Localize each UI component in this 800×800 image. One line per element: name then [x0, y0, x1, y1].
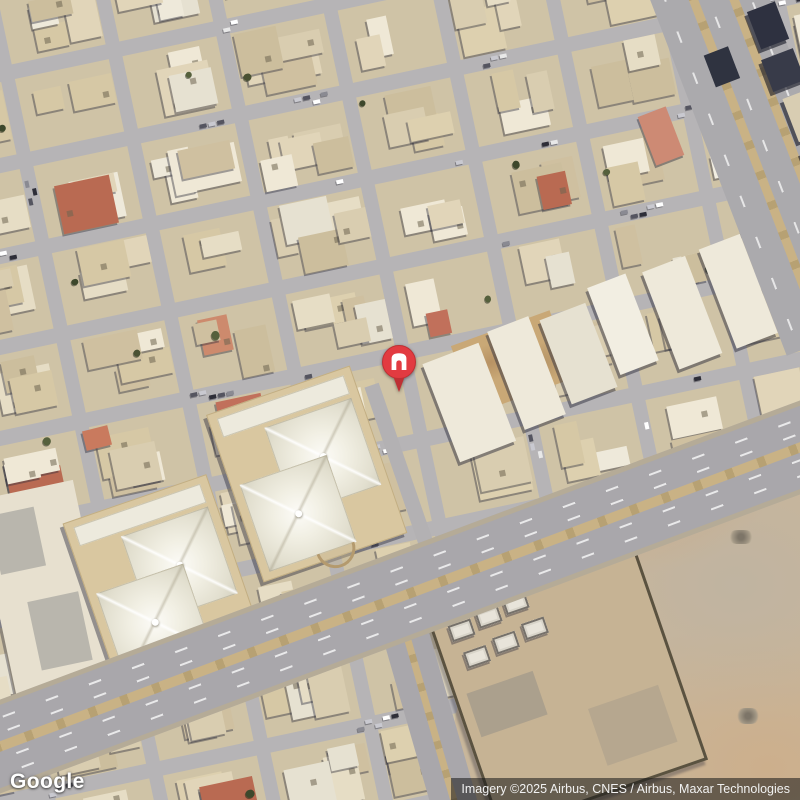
satellite-map-canvas[interactable]: Google Imagery ©2025 Airbus, CNES / Airb… [0, 0, 800, 800]
home-pin-icon [378, 344, 420, 394]
building-block [356, 78, 465, 170]
tree [210, 331, 220, 341]
building [782, 88, 800, 142]
roof-unit [223, 339, 230, 346]
building-block [375, 165, 484, 257]
parked-car [503, 241, 511, 246]
parked-car [647, 204, 655, 209]
paved-patch [588, 685, 678, 766]
house [69, 73, 116, 111]
roof-unit [389, 743, 396, 750]
house [313, 137, 354, 174]
parked-car [375, 723, 383, 728]
roof-unit [2, 217, 9, 224]
parked-car [357, 727, 365, 732]
roof-unit [417, 221, 424, 228]
building-block [553, 0, 662, 37]
parked-car [640, 212, 648, 217]
debris-pile [728, 530, 754, 544]
utility-unit [521, 616, 549, 640]
house [0, 194, 31, 238]
roof-unit [637, 51, 644, 58]
parked-car [0, 251, 7, 256]
building-block [159, 210, 268, 302]
house [426, 310, 452, 338]
parked-car [28, 198, 33, 206]
roof-unit [44, 37, 51, 44]
debris-pile [736, 708, 760, 724]
roof-unit [190, 78, 197, 85]
house [283, 760, 337, 800]
parked-car [230, 20, 238, 25]
roof-unit [100, 263, 107, 270]
roof-unit [311, 779, 318, 786]
roof-unit [307, 39, 314, 46]
utility-unit [492, 631, 520, 655]
roof-unit [271, 164, 278, 171]
building-block [270, 733, 379, 800]
building-block [33, 146, 142, 238]
parked-car [491, 55, 499, 60]
roof-unit [344, 228, 351, 235]
parked-car [621, 209, 629, 214]
building-block [0, 0, 106, 64]
building-block [0, 256, 54, 348]
map-marker[interactable] [378, 344, 420, 394]
parked-car [383, 715, 391, 720]
house [260, 154, 298, 192]
parked-car [223, 27, 231, 32]
parked-car [199, 123, 207, 128]
parked-car [9, 255, 17, 260]
building-block [0, 343, 72, 435]
building-block [338, 0, 447, 83]
parked-car [677, 113, 685, 118]
parked-car [208, 121, 216, 126]
house [54, 174, 119, 234]
house [33, 86, 66, 114]
building-block [482, 142, 591, 234]
roof-unit [103, 90, 110, 97]
building-block [52, 233, 161, 325]
house [334, 207, 372, 244]
paved-patch [466, 671, 547, 737]
roof-unit [19, 368, 26, 375]
house [0, 90, 12, 149]
parked-car [217, 120, 225, 125]
roof-unit [559, 187, 566, 194]
roof-unit [150, 338, 157, 345]
tree [512, 160, 521, 169]
parked-car [656, 202, 664, 207]
shadowed-building [761, 48, 800, 92]
roof-unit [113, 795, 120, 800]
parked-car [500, 53, 508, 58]
house [624, 35, 661, 71]
building-block [212, 0, 321, 19]
parked-car [365, 719, 373, 724]
parked-car [455, 160, 463, 165]
roof-unit [34, 385, 41, 392]
parked-car [303, 95, 311, 100]
house [233, 26, 285, 77]
house [546, 251, 576, 287]
map-attribution: Imagery ©2025 Airbus, CNES / Airbus, Max… [451, 778, 800, 800]
roof-unit [55, 0, 62, 7]
google-logo[interactable]: Google [10, 770, 85, 794]
mall-building-east [206, 366, 407, 583]
parked-car [542, 141, 550, 146]
roof-unit [520, 180, 527, 187]
parked-car [24, 181, 29, 189]
building-block [445, 0, 554, 60]
parked-car [391, 713, 399, 718]
building-block [267, 187, 376, 279]
building-block [163, 756, 272, 800]
tree [484, 295, 491, 302]
parked-car [320, 91, 328, 96]
building-block [15, 59, 124, 151]
house [491, 70, 521, 113]
roof-unit [348, 767, 355, 774]
roof-unit [67, 210, 74, 217]
tree [71, 278, 79, 286]
tree [358, 99, 366, 107]
building-block [122, 36, 231, 128]
building-block [0, 82, 17, 174]
shadowed-building [747, 1, 789, 49]
parked-car [483, 63, 491, 68]
parked-car [631, 213, 639, 218]
utility-unit [463, 645, 491, 669]
parked-car [294, 97, 302, 102]
roof-unit [264, 56, 271, 63]
parked-car [551, 140, 559, 145]
house [83, 789, 131, 800]
building-block [70, 320, 179, 412]
house [615, 224, 643, 268]
parked-car [336, 179, 344, 184]
building-block [104, 0, 213, 42]
roof-unit [149, 356, 156, 363]
roof-unit [701, 410, 708, 417]
building-block [141, 123, 250, 215]
parked-car [796, 0, 800, 2]
building-block [0, 169, 35, 261]
parked-car [313, 99, 321, 104]
marker-circle [383, 346, 416, 379]
building-block [464, 55, 573, 147]
house [9, 370, 58, 415]
parked-car [32, 188, 37, 196]
